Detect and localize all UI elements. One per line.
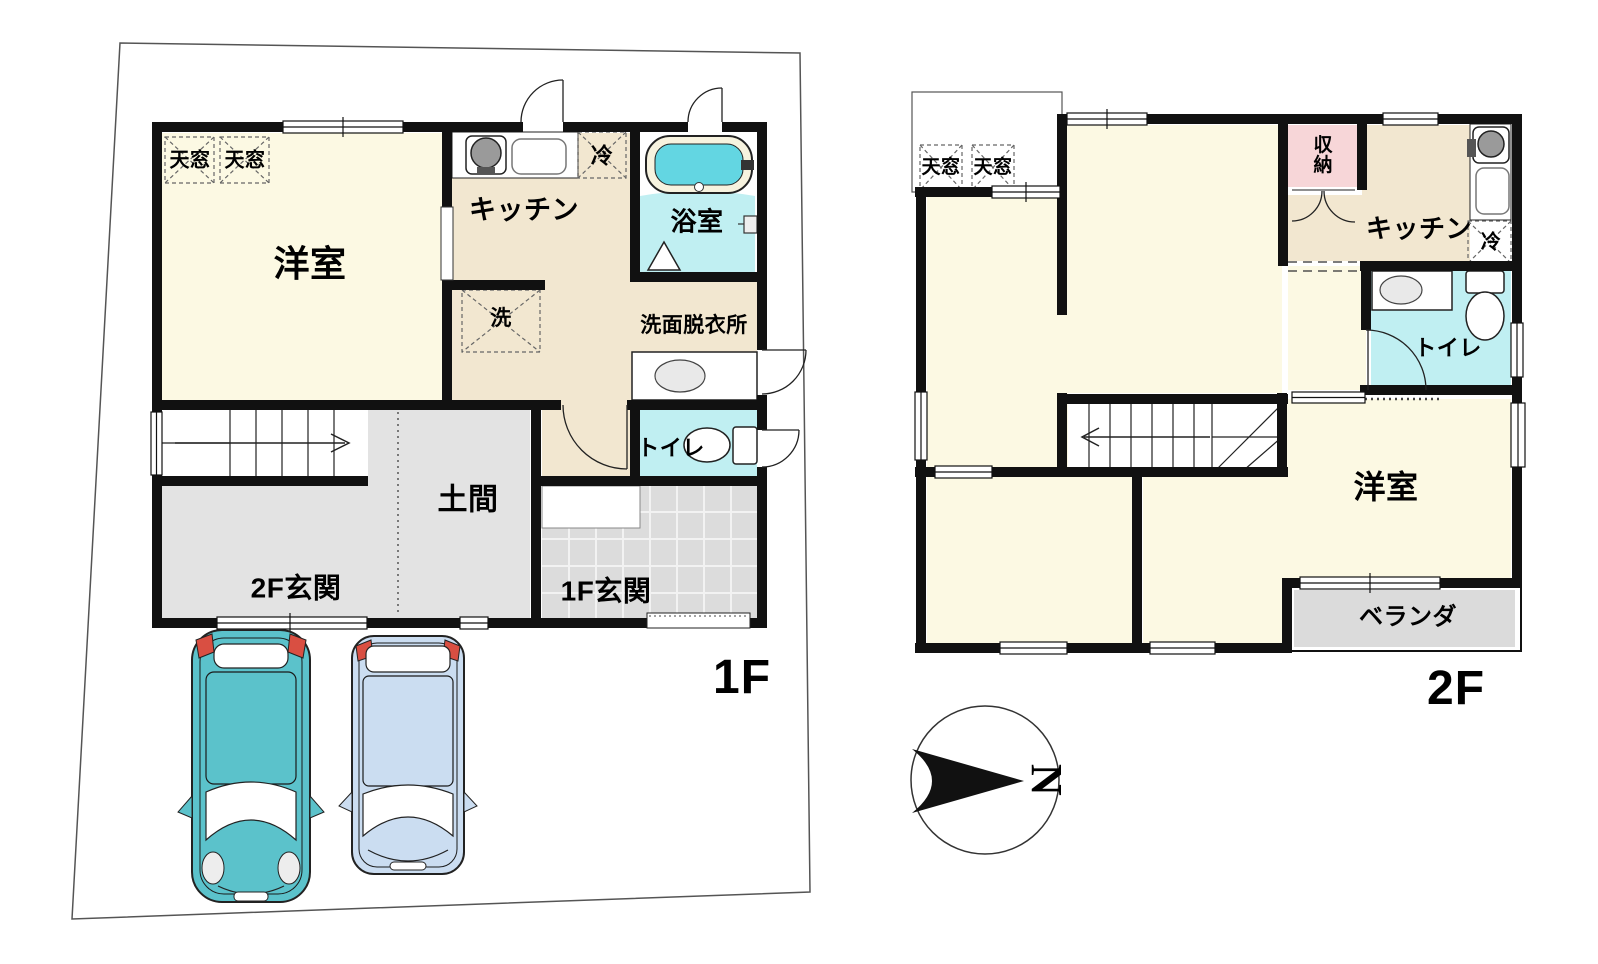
label-storage-2f: 収納: [1311, 136, 1335, 176]
headlight-icon: [278, 852, 300, 884]
kitchen-counter-1f: [452, 132, 578, 178]
room-bottom-left-2f: [927, 477, 1132, 648]
vanity-2f: [1372, 271, 1452, 310]
label-skylight-1f-2: 天窓: [225, 151, 266, 172]
window: [1511, 323, 1523, 377]
window: [1000, 642, 1067, 654]
label-entrance-1f: 1F玄関: [561, 576, 652, 605]
washbasin-icon: [1380, 276, 1422, 304]
label-floor-1f: 1F: [713, 653, 771, 703]
label-washer-1f: 洗: [490, 308, 512, 330]
label-floor-2f: 2F: [1427, 664, 1485, 714]
label-skylight-2f-1: 天窓: [921, 158, 960, 178]
sink-icon: [1476, 168, 1509, 214]
window: [460, 617, 488, 629]
label-washroom-1f: 洗面脱衣所: [640, 315, 748, 337]
window: [915, 392, 927, 460]
label-skylight-2f-2: 天窓: [973, 158, 1012, 178]
label-fridge-2f: 冷: [1481, 233, 1502, 254]
rear-window: [366, 646, 450, 672]
entrance-door-1f: [647, 613, 750, 628]
room-bottom-center-2f: [1143, 477, 1282, 648]
label-western-room-2f: 洋室: [1353, 471, 1418, 505]
label-veranda-2f: ベランダ: [1359, 604, 1457, 629]
kitchen-counter-2f: [1467, 124, 1511, 220]
car-roof: [206, 672, 296, 784]
rear-window: [214, 644, 288, 668]
label-entrance-2f: 2F玄関: [251, 573, 342, 602]
stairwell-2f: [1068, 404, 1282, 472]
window: [151, 412, 162, 475]
label-toilet-1f: トイレ: [637, 436, 705, 459]
bathtub-1f: [646, 136, 754, 193]
label-kitchen-2f: キッチン: [1366, 215, 1472, 242]
label-bath-1f: 浴室: [670, 208, 723, 235]
faucet-icon: [741, 160, 754, 170]
label-toilet-2f: トイレ: [1414, 336, 1482, 359]
car-teal: [178, 630, 324, 902]
window: [1511, 403, 1525, 467]
window: [935, 466, 992, 478]
toilet-bowl-icon: [1466, 292, 1504, 340]
vanity-1f: [632, 352, 757, 400]
kitchen-passthrough-1f: [441, 207, 453, 280]
window: [1292, 392, 1365, 403]
label-doma-1f: 土間: [438, 484, 499, 516]
sink-icon: [512, 139, 566, 174]
label-compass-north: N: [1023, 764, 1069, 796]
hallway-2f: [1288, 266, 1366, 390]
label-western-room-1f: 洋室: [273, 245, 346, 283]
washbasin-icon: [655, 360, 705, 392]
label-skylight-1f-1: 天窓: [170, 151, 211, 172]
car-blue: [339, 636, 477, 874]
window: [1150, 642, 1215, 654]
floor-plan-page: 天窓 天窓 洋室 キッチン 冷 浴室 洗 洗面脱衣所 トイレ 土間 2F玄関 1…: [0, 0, 1598, 964]
car-roof: [363, 676, 453, 786]
headlight-icon: [202, 852, 224, 884]
window: [1383, 113, 1438, 125]
label-fridge-1f: 冷: [591, 144, 614, 167]
label-kitchen-1f: キッチン: [469, 196, 579, 224]
toilet-fixture-2f: [1466, 271, 1504, 340]
entrance-step-1f: [542, 486, 640, 528]
